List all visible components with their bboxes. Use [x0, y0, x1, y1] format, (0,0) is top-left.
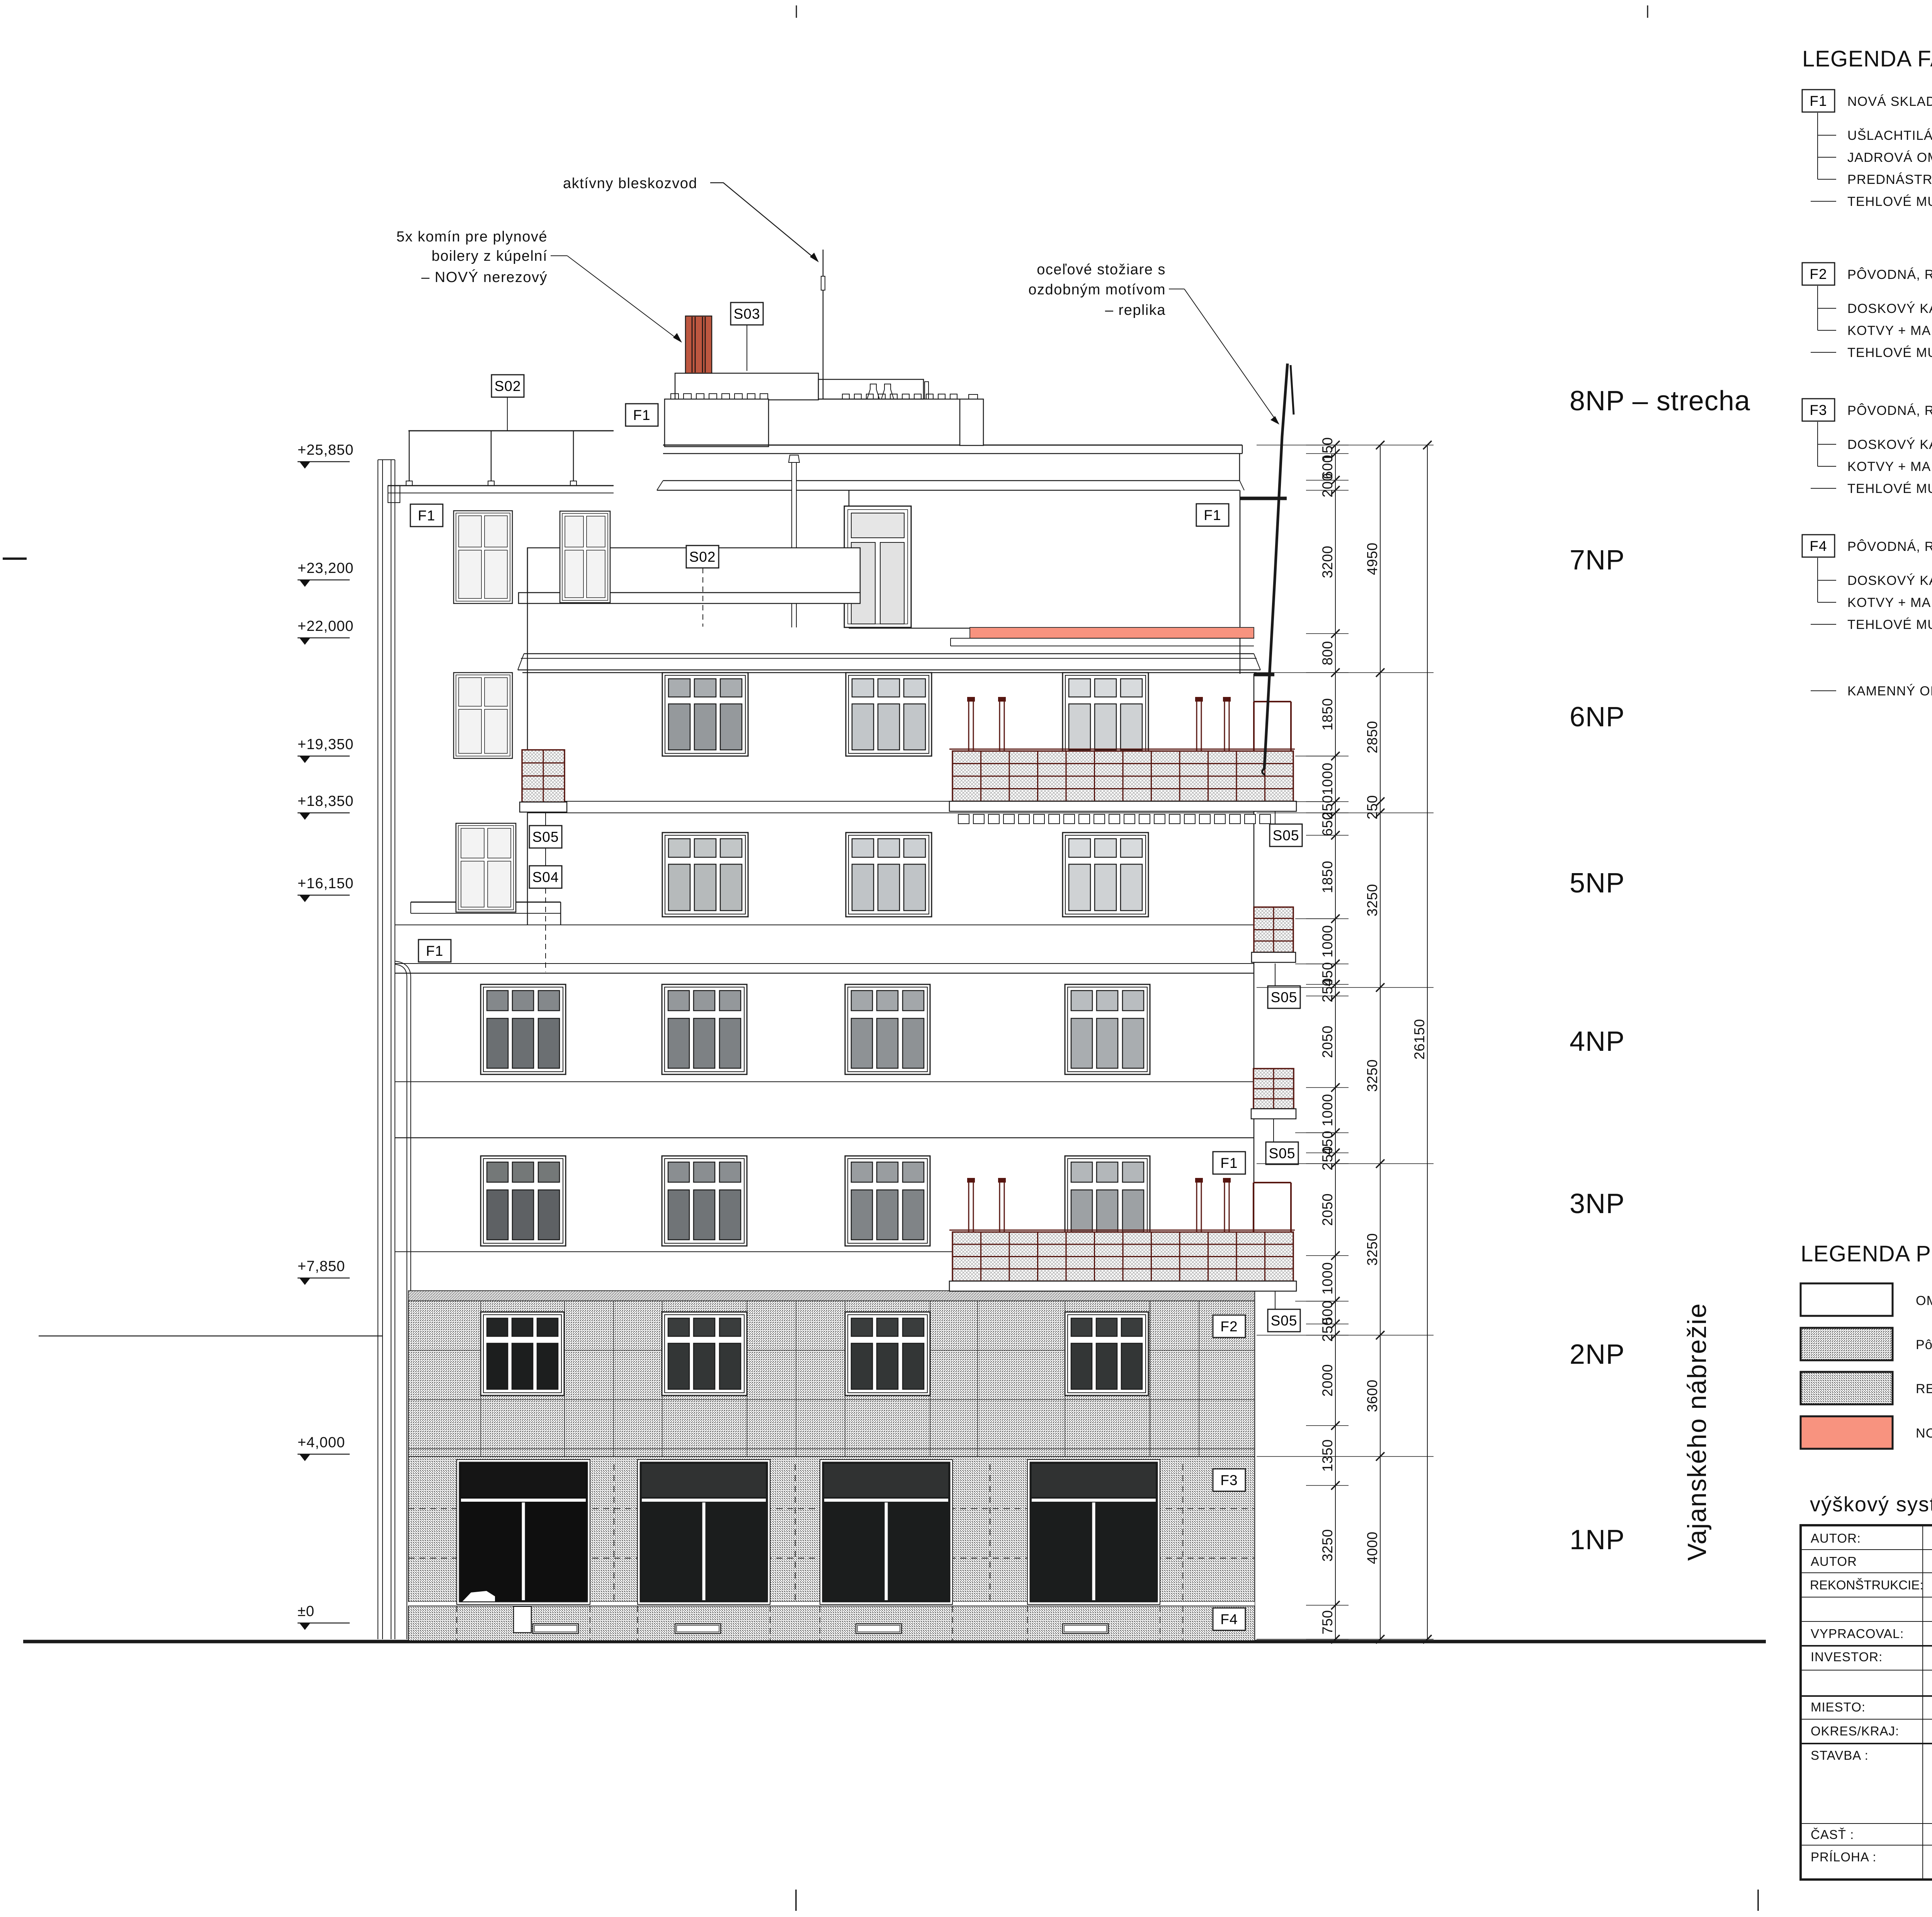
svg-text:TEHLOVÉ MURIVO: TEHLOVÉ MURIVO: [1847, 194, 1932, 209]
svg-text:S05: S05: [532, 829, 559, 845]
svg-text:TEHLOVÉ MURIVO: TEHLOVÉ MURIVO: [1847, 345, 1932, 360]
svg-text:KAMENNÝ OBKLAD OČISTIŤ DO PÔVO: KAMENNÝ OBKLAD OČISTIŤ DO PÔVODNÉHO VZHĽ…: [1847, 684, 1932, 698]
svg-text:DOSKOVÝ KAMENNÝ OBKLAD (VÁPENE: DOSKOVÝ KAMENNÝ OBKLAD (VÁPENEC): [1847, 573, 1932, 588]
svg-text:S05: S05: [1269, 1145, 1296, 1161]
svg-text:1850: 1850: [1320, 698, 1335, 731]
svg-text:3600: 3600: [1364, 1380, 1380, 1412]
svg-text:NOVONAVRHOVANÉ KONŠTRUKCIE: NOVONAVRHOVANÉ KONŠTRUKCIE: [1916, 1426, 1932, 1441]
svg-text:F3: F3: [1810, 402, 1827, 418]
svg-text:+16,150: +16,150: [298, 875, 354, 892]
svg-text:KOTVY + MALTOVÉ TERČE: KOTVY + MALTOVÉ TERČE: [1847, 595, 1932, 610]
svg-text:7NP: 7NP: [1570, 545, 1625, 576]
svg-text:MIESTO:: MIESTO:: [1811, 1700, 1866, 1714]
svg-text:2000: 2000: [1320, 1364, 1335, 1397]
svg-text:PÔVODNÁ, REKONŠTRUOVANÁ SKLADB: PÔVODNÁ, REKONŠTRUOVANÁ SKLADBA: [1847, 539, 1932, 554]
svg-text:AUTOR:: AUTOR:: [1811, 1531, 1861, 1545]
svg-text:PÔVODNÁ, REKONŠTRUOVANÁ SKLADB: PÔVODNÁ, REKONŠTRUOVANÁ SKLADBA: [1847, 267, 1932, 282]
svg-text:S05: S05: [1271, 989, 1298, 1005]
svg-text:PôVODNÝ KAMENNÝ OBKLAD – VEĽKO: PôVODNÝ KAMENNÝ OBKLAD – VEĽKOFORMÁTOVÉ …: [1916, 1337, 1932, 1352]
svg-text:ČASŤ :: ČASŤ :: [1811, 1827, 1854, 1842]
svg-text:TEHLOVÉ MURIVO: TEHLOVÉ MURIVO: [1847, 617, 1932, 632]
svg-text:NOVÁ SKLADBA: NOVÁ SKLADBA: [1847, 94, 1932, 109]
svg-text:S02: S02: [689, 549, 716, 565]
svg-text:250: 250: [1320, 978, 1335, 1002]
svg-text:750: 750: [1320, 1610, 1335, 1634]
svg-text:– NOVÝ nerezový: – NOVÝ nerezový: [421, 269, 548, 286]
svg-text:2NP: 2NP: [1570, 1339, 1625, 1370]
svg-text:TEHLOVÉ MURIVO: TEHLOVÉ MURIVO: [1847, 481, 1932, 496]
svg-text:+22,000: +22,000: [298, 618, 354, 634]
svg-text:±0: ±0: [298, 1603, 315, 1620]
svg-text:+25,850: +25,850: [298, 442, 354, 458]
svg-text:26150: 26150: [1412, 1019, 1427, 1059]
svg-text:KOTVY + MALTOVÉ TERČE: KOTVY + MALTOVÉ TERČE: [1847, 323, 1932, 338]
svg-text:– replika: – replika: [1105, 302, 1166, 318]
svg-text:F1: F1: [418, 508, 435, 523]
svg-text:S04: S04: [532, 869, 559, 885]
svg-text:650: 650: [1320, 812, 1335, 836]
svg-text:LEGENDA POVRCHOV – SÚČASNÝ STA: LEGENDA POVRCHOV – SÚČASNÝ STAV: [1801, 1241, 1932, 1266]
svg-text:S05: S05: [1273, 828, 1299, 843]
svg-text:1NP: 1NP: [1570, 1524, 1625, 1555]
svg-text:1000: 1000: [1320, 763, 1335, 795]
svg-text:S05: S05: [1271, 1313, 1298, 1329]
svg-text:3250: 3250: [1364, 884, 1380, 916]
svg-text:3200: 3200: [1320, 546, 1335, 578]
svg-text:2850: 2850: [1364, 721, 1380, 753]
svg-text:F4: F4: [1220, 1611, 1238, 1627]
svg-text:S03: S03: [734, 306, 760, 322]
svg-text:PREDNÁSTREK: PREDNÁSTREK: [1847, 172, 1932, 187]
svg-text:4000: 4000: [1364, 1531, 1380, 1564]
svg-text:F2: F2: [1220, 1319, 1238, 1334]
svg-text:2050: 2050: [1320, 1025, 1335, 1058]
svg-text:5NP: 5NP: [1570, 868, 1625, 899]
svg-text:STAVBA :: STAVBA :: [1811, 1748, 1869, 1762]
svg-text:+23,200: +23,200: [298, 560, 354, 576]
svg-text:S02: S02: [495, 378, 521, 394]
svg-text:INVESTOR:: INVESTOR:: [1811, 1650, 1883, 1664]
svg-text:VYPRACOVAL:: VYPRACOVAL:: [1811, 1626, 1904, 1641]
svg-text:F1: F1: [633, 407, 650, 423]
svg-text:aktívny bleskozvod: aktívny bleskozvod: [563, 175, 697, 192]
svg-text:PÔVODNÁ, REKONŠTRUOVANÁ SKLADB: PÔVODNÁ, REKONŠTRUOVANÁ SKLADBA: [1847, 403, 1932, 418]
svg-text:LEGENDA FASÁD: LEGENDA FASÁD: [1802, 46, 1932, 71]
svg-text:+4,000: +4,000: [298, 1434, 345, 1451]
svg-text:DOSKOVÝ KAMENNÝ OBKLAD (VÁPENE: DOSKOVÝ KAMENNÝ OBKLAD (VÁPENEC): [1847, 437, 1932, 452]
svg-text:F1: F1: [1220, 1155, 1238, 1171]
svg-text:1850: 1850: [1320, 861, 1335, 893]
svg-text:4NP: 4NP: [1570, 1026, 1625, 1057]
svg-text:REŠTAUROVANÝ KAMENNÝ OBKLAD –: REŠTAUROVANÝ KAMENNÝ OBKLAD – VEĽKOFORMÁ…: [1916, 1382, 1932, 1396]
svg-text:DOSKOVÝ KAMENNÝ OBKLAD (VÁPENE: DOSKOVÝ KAMENNÝ OBKLAD (VÁPENEC): [1847, 301, 1932, 316]
svg-text:800: 800: [1320, 641, 1335, 665]
svg-text:oceľové stožiare s: oceľové stožiare s: [1037, 262, 1166, 278]
svg-text:OMIETKA: OMIETKA: [1916, 1293, 1932, 1308]
svg-text:JADROVÁ OMIETKA: JADROVÁ OMIETKA: [1847, 150, 1932, 165]
svg-text:3250: 3250: [1364, 1059, 1380, 1092]
svg-text:Vajanského nábrežie: Vajanského nábrežie: [1682, 1303, 1712, 1561]
svg-text:PRÍLOHA :: PRÍLOHA :: [1811, 1850, 1876, 1864]
svg-text:1350: 1350: [1320, 1439, 1335, 1472]
svg-text:ozdobným motívom: ozdobným motívom: [1028, 282, 1166, 298]
svg-text:1000: 1000: [1320, 925, 1335, 957]
svg-text:+7,850: +7,850: [298, 1258, 345, 1275]
svg-text:F1: F1: [1810, 93, 1827, 109]
svg-text:AUTOR: AUTOR: [1811, 1554, 1857, 1569]
svg-text:200: 200: [1320, 473, 1335, 497]
svg-text:výškový systém miestny: výškový systém miestny: [1810, 1493, 1932, 1516]
svg-text:5x komín pre plynové: 5x komín pre plynové: [396, 229, 548, 245]
svg-text:OKRES/KRAJ:: OKRES/KRAJ:: [1811, 1724, 1899, 1738]
svg-text:F4: F4: [1810, 538, 1827, 554]
svg-text:4950: 4950: [1364, 542, 1380, 575]
svg-text:F3: F3: [1220, 1472, 1238, 1488]
svg-text:3NP: 3NP: [1570, 1188, 1625, 1219]
svg-text:F1: F1: [426, 943, 443, 959]
svg-text:REKONŠTRUKCIE:: REKONŠTRUKCIE:: [1810, 1578, 1923, 1592]
svg-text:F2: F2: [1810, 266, 1827, 282]
svg-text:1000: 1000: [1320, 1094, 1335, 1126]
svg-text:3250: 3250: [1320, 1529, 1335, 1562]
svg-text:8NP – strecha: 8NP – strecha: [1570, 386, 1750, 416]
svg-text:2050: 2050: [1320, 1193, 1335, 1226]
svg-text:3250: 3250: [1364, 1233, 1380, 1266]
svg-text:250: 250: [1320, 1317, 1335, 1342]
svg-text:250: 250: [1364, 795, 1380, 819]
svg-text:1000: 1000: [1320, 1262, 1335, 1295]
svg-text:+19,350: +19,350: [298, 736, 354, 753]
svg-text:250: 250: [1320, 1146, 1335, 1170]
svg-text:boilery z kúpelní: boilery z kúpelní: [432, 248, 548, 264]
svg-text:6NP: 6NP: [1570, 702, 1625, 732]
svg-text:KOTVY + MALTOVÉ TERČE: KOTVY + MALTOVÉ TERČE: [1847, 459, 1932, 474]
svg-text:+18,350: +18,350: [298, 793, 354, 809]
svg-text:F1: F1: [1204, 507, 1221, 523]
svg-text:UŠLACHTILÁ HLADKÁ OMIETKA: UŠLACHTILÁ HLADKÁ OMIETKA: [1847, 128, 1932, 143]
